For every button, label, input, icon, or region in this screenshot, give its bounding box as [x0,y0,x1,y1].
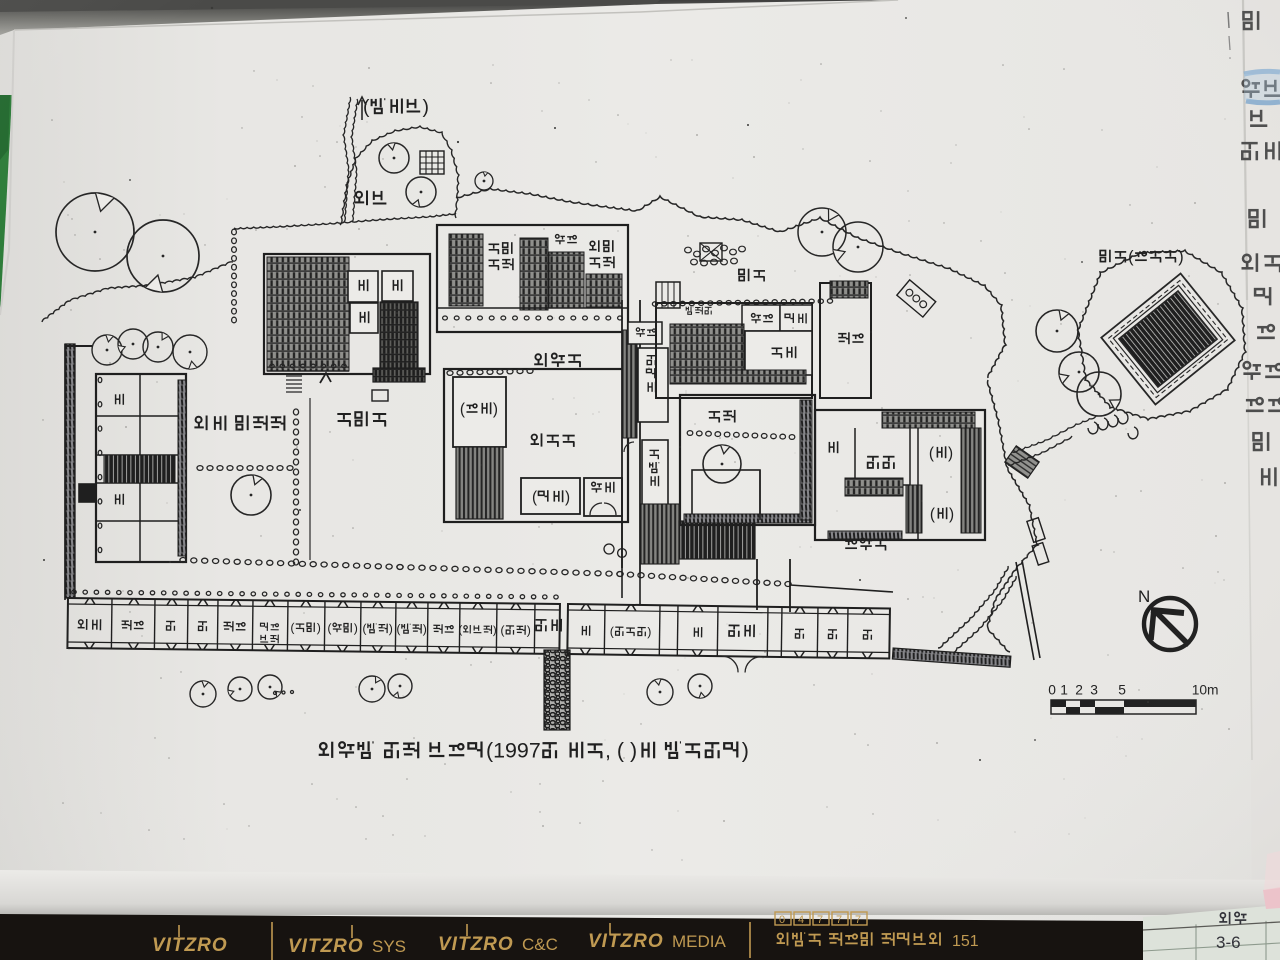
svg-text:7: 7 [855,914,861,926]
svg-text:0: 0 [779,914,785,926]
svg-text:151: 151 [952,933,979,950]
svg-text:VITZRO: VITZRO [588,931,664,952]
svg-text:VITZRO: VITZRO [288,936,364,957]
svg-text:VITZRO: VITZRO [152,935,228,956]
svg-text:MEDIA: MEDIA [672,932,727,951]
svg-text:4: 4 [798,914,804,926]
svg-text:C&C: C&C [522,935,558,954]
svg-text:VITZRO: VITZRO [438,934,514,955]
svg-text:7: 7 [836,914,842,926]
svg-text:3-6: 3-6 [1216,933,1241,952]
svg-text:7: 7 [817,914,823,926]
svg-text:SYS: SYS [372,937,406,956]
